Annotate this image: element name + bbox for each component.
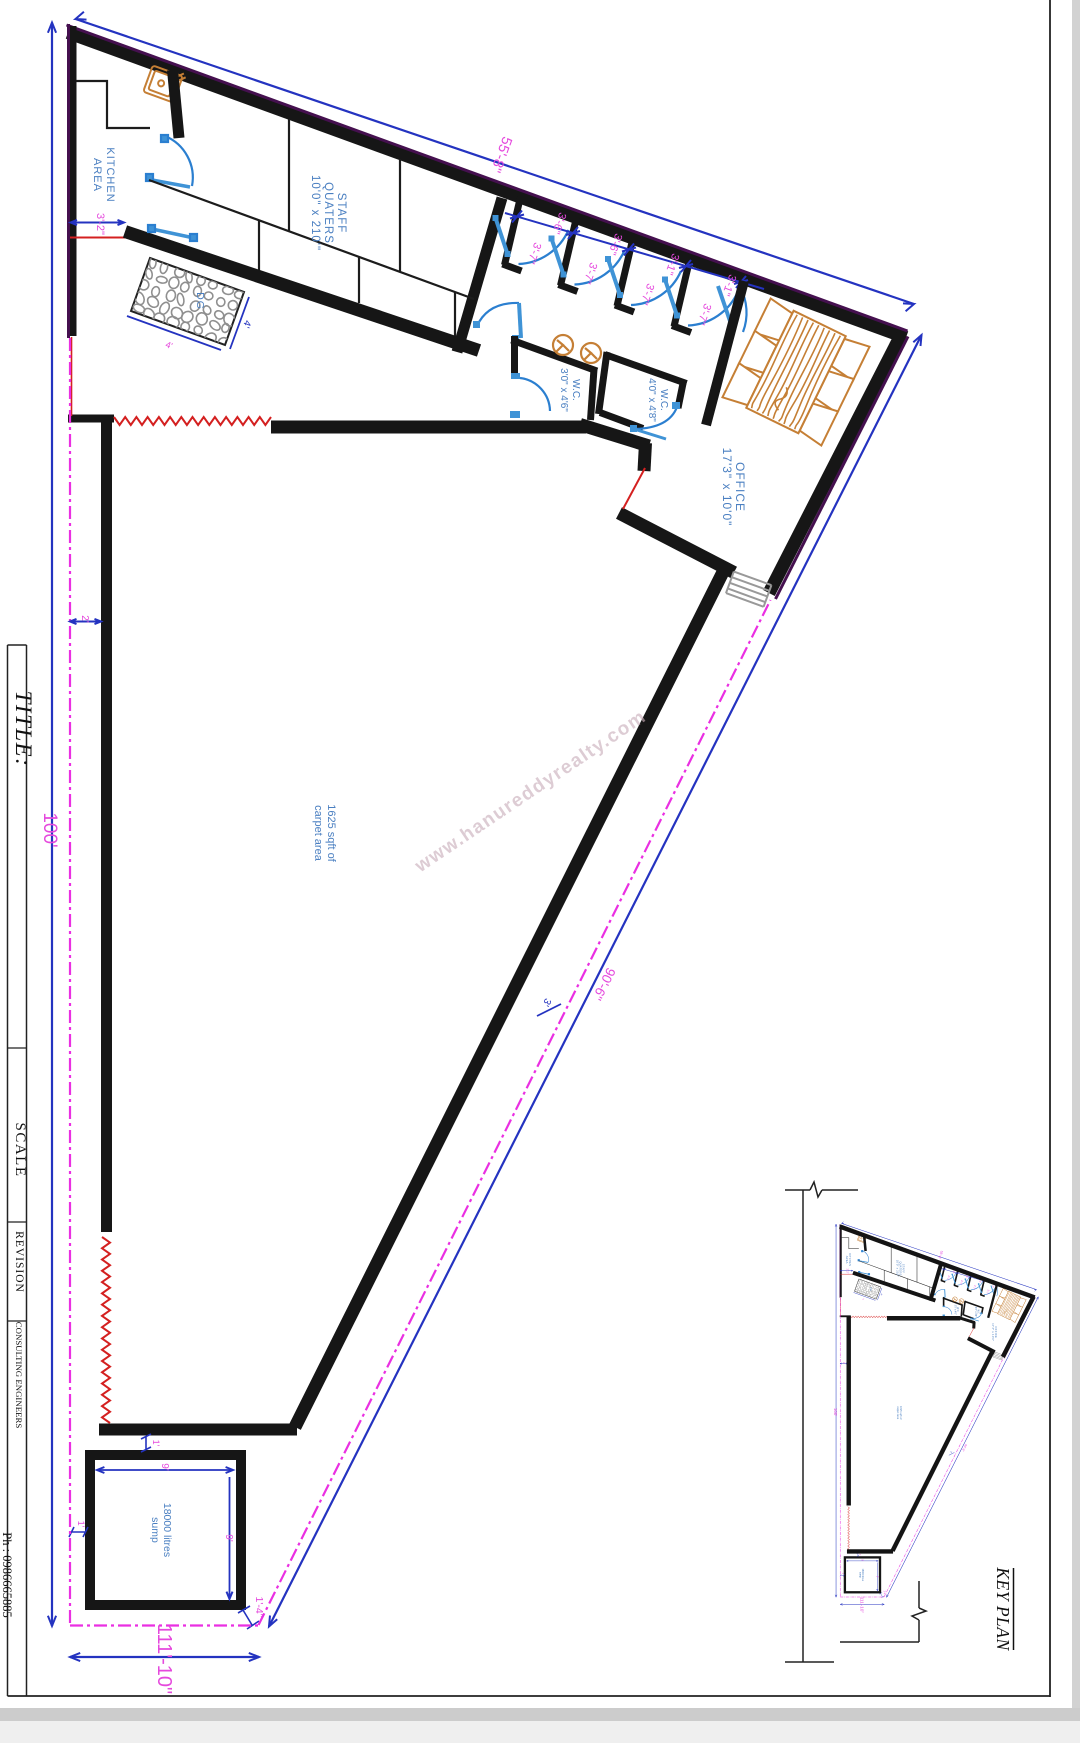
svg-text:1625 sqft ofcarpet area: 1625 sqft ofcarpet area: [312, 804, 337, 862]
svg-text:111'-10": 111'-10": [153, 1624, 175, 1694]
svg-text:9': 9': [159, 1463, 170, 1471]
svg-text:DG: DG: [194, 292, 206, 310]
svg-text:2': 2': [79, 615, 90, 623]
svg-text:Ph : 0986665885: Ph : 0986665885: [0, 1532, 14, 1617]
svg-text:KEY PLAN: KEY PLAN: [993, 1566, 1013, 1651]
svg-text:1': 1': [151, 1440, 161, 1447]
svg-text:REVISION: REVISION: [13, 1231, 25, 1293]
svg-text:3'-2": 3'-2": [94, 213, 106, 235]
svg-text:CONSULTING ENGINEERS: CONSULTING ENGINEERS: [14, 1322, 24, 1429]
svg-text:100': 100': [39, 812, 60, 847]
svg-text:TITLE:: TITLE:: [11, 691, 36, 768]
svg-text:SCALE: SCALE: [12, 1122, 28, 1177]
svg-text:1': 1': [76, 1521, 86, 1528]
svg-text:9': 9': [223, 1534, 234, 1542]
